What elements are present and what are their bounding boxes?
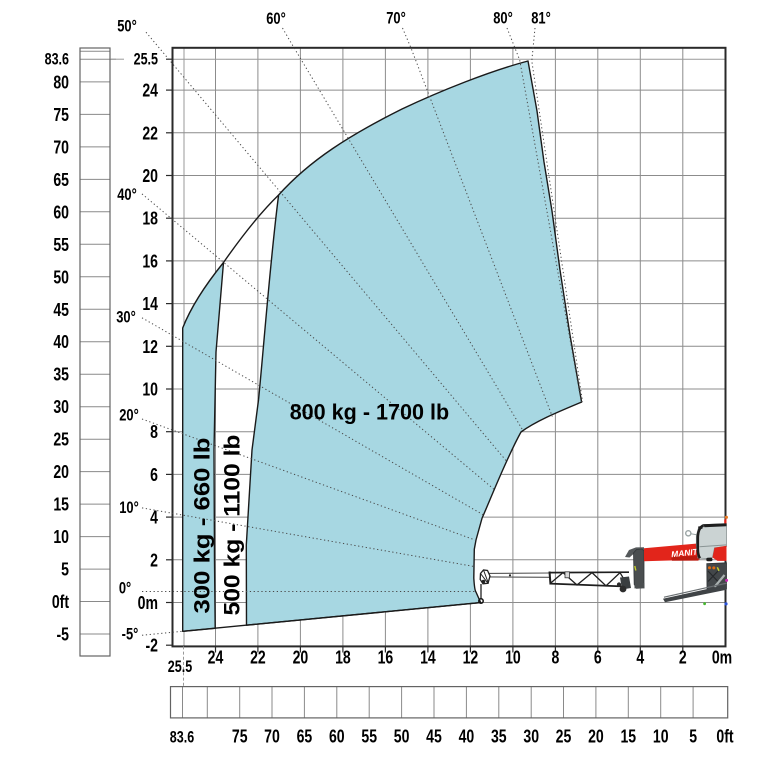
svg-text:20: 20 — [142, 166, 158, 186]
svg-text:35: 35 — [53, 365, 69, 385]
svg-text:6: 6 — [150, 465, 158, 485]
svg-text:500 kg - 1100 lb: 500 kg - 1100 lb — [220, 435, 245, 616]
svg-text:25.5: 25.5 — [168, 658, 192, 676]
svg-text:16: 16 — [142, 252, 158, 272]
svg-text:0ft: 0ft — [716, 727, 734, 747]
svg-text:10: 10 — [53, 527, 69, 547]
svg-text:18: 18 — [142, 209, 158, 229]
svg-text:12: 12 — [142, 337, 158, 357]
svg-text:15: 15 — [53, 495, 69, 515]
svg-text:8: 8 — [150, 422, 158, 442]
svg-text:70: 70 — [53, 138, 69, 158]
svg-text:0m: 0m — [138, 593, 158, 613]
svg-text:20: 20 — [293, 648, 309, 668]
svg-text:0ft: 0ft — [52, 592, 70, 612]
svg-text:80: 80 — [53, 73, 69, 93]
svg-text:25.5: 25.5 — [134, 51, 158, 69]
svg-text:10: 10 — [653, 727, 669, 747]
svg-text:20: 20 — [588, 727, 604, 747]
svg-text:-5°: -5° — [122, 625, 139, 644]
svg-text:2: 2 — [679, 648, 687, 668]
svg-text:20: 20 — [53, 462, 69, 482]
svg-text:24: 24 — [208, 648, 224, 668]
svg-text:75: 75 — [53, 105, 69, 125]
svg-text:25: 25 — [53, 430, 69, 450]
svg-text:60°: 60° — [266, 9, 286, 28]
svg-text:70°: 70° — [386, 9, 406, 28]
svg-text:0°: 0° — [119, 579, 131, 598]
svg-text:6: 6 — [594, 648, 602, 668]
svg-text:50: 50 — [394, 727, 410, 747]
svg-text:16: 16 — [378, 648, 394, 668]
svg-text:0m: 0m — [712, 648, 732, 668]
svg-text:4: 4 — [150, 508, 159, 528]
svg-text:30: 30 — [53, 397, 69, 417]
svg-text:80°: 80° — [493, 9, 513, 28]
svg-text:15: 15 — [620, 727, 636, 747]
svg-text:-5: -5 — [56, 625, 69, 645]
svg-text:14: 14 — [142, 294, 158, 314]
svg-text:22: 22 — [250, 648, 266, 668]
svg-text:45: 45 — [53, 300, 69, 320]
svg-text:81°: 81° — [531, 9, 551, 28]
svg-text:5: 5 — [61, 560, 69, 580]
svg-text:35: 35 — [491, 727, 507, 747]
svg-text:60: 60 — [329, 727, 345, 747]
svg-text:800 kg - 1700 lb: 800 kg - 1700 lb — [290, 400, 450, 425]
svg-text:30°: 30° — [116, 308, 136, 327]
svg-text:22: 22 — [142, 124, 158, 144]
svg-text:18: 18 — [335, 648, 351, 668]
svg-text:45: 45 — [426, 727, 442, 747]
svg-text:14: 14 — [420, 648, 436, 668]
svg-text:300 kg - 660 lb: 300 kg - 660 lb — [190, 438, 215, 614]
svg-text:55: 55 — [361, 727, 377, 747]
svg-text:-2: -2 — [145, 636, 158, 656]
svg-text:4: 4 — [636, 648, 645, 668]
svg-text:40: 40 — [459, 727, 475, 747]
svg-text:83.6: 83.6 — [170, 729, 194, 747]
svg-text:50°: 50° — [117, 17, 137, 36]
svg-text:83.6: 83.6 — [45, 51, 69, 69]
svg-text:10°: 10° — [119, 498, 139, 517]
svg-text:70: 70 — [264, 727, 280, 747]
svg-text:65: 65 — [297, 727, 313, 747]
svg-text:60: 60 — [53, 203, 69, 223]
svg-text:50: 50 — [53, 268, 69, 288]
svg-text:5: 5 — [689, 727, 697, 747]
svg-text:10: 10 — [142, 380, 158, 400]
svg-text:55: 55 — [53, 235, 69, 255]
svg-text:24: 24 — [142, 81, 158, 101]
svg-text:25: 25 — [556, 727, 572, 747]
svg-text:2: 2 — [150, 551, 158, 571]
svg-text:40°: 40° — [117, 185, 137, 204]
svg-text:40: 40 — [53, 332, 69, 352]
svg-text:65: 65 — [53, 170, 69, 190]
svg-text:30: 30 — [523, 727, 539, 747]
svg-text:10: 10 — [505, 648, 521, 668]
svg-text:20°: 20° — [119, 406, 139, 425]
svg-text:8: 8 — [551, 648, 559, 668]
svg-text:12: 12 — [463, 648, 479, 668]
svg-text:75: 75 — [232, 727, 248, 747]
